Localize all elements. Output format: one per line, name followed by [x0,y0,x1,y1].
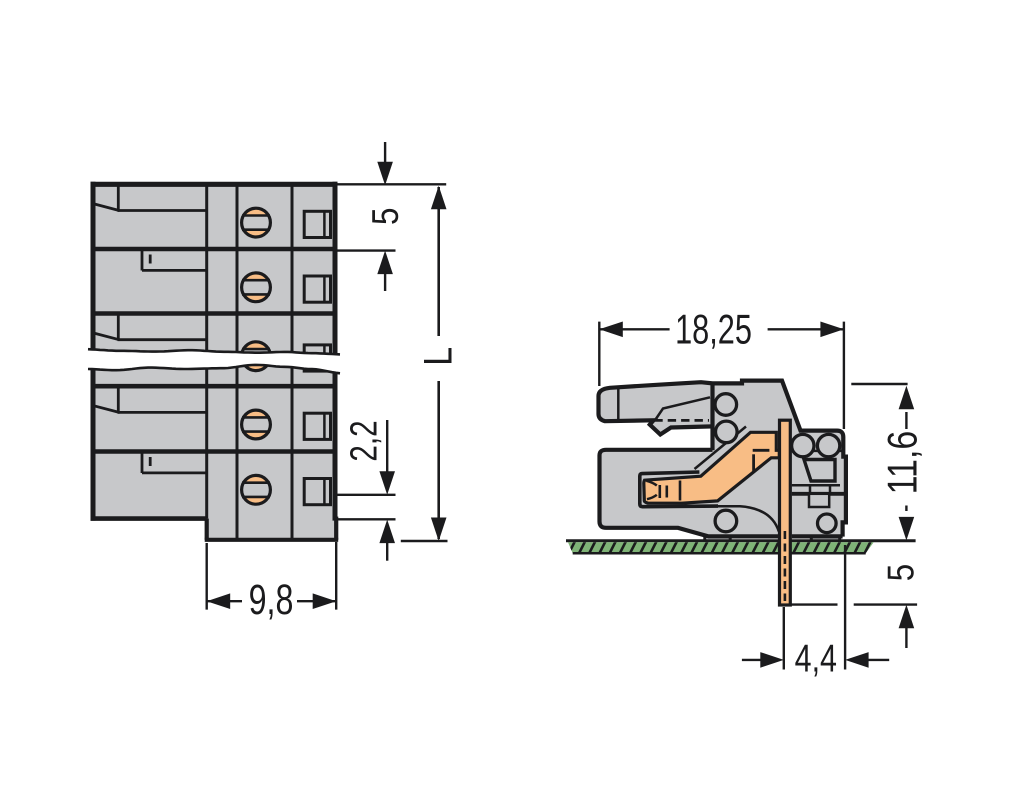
svg-text:4,4: 4,4 [795,637,837,680]
svg-text:5: 5 [366,207,407,224]
svg-text:11,6: 11,6 [881,431,927,495]
svg-text:9,8: 9,8 [249,577,294,625]
svg-text:L: L [415,347,460,366]
svg-text:18,25: 18,25 [675,306,752,353]
svg-text:5: 5 [881,564,922,581]
svg-text:2,2: 2,2 [343,420,385,461]
